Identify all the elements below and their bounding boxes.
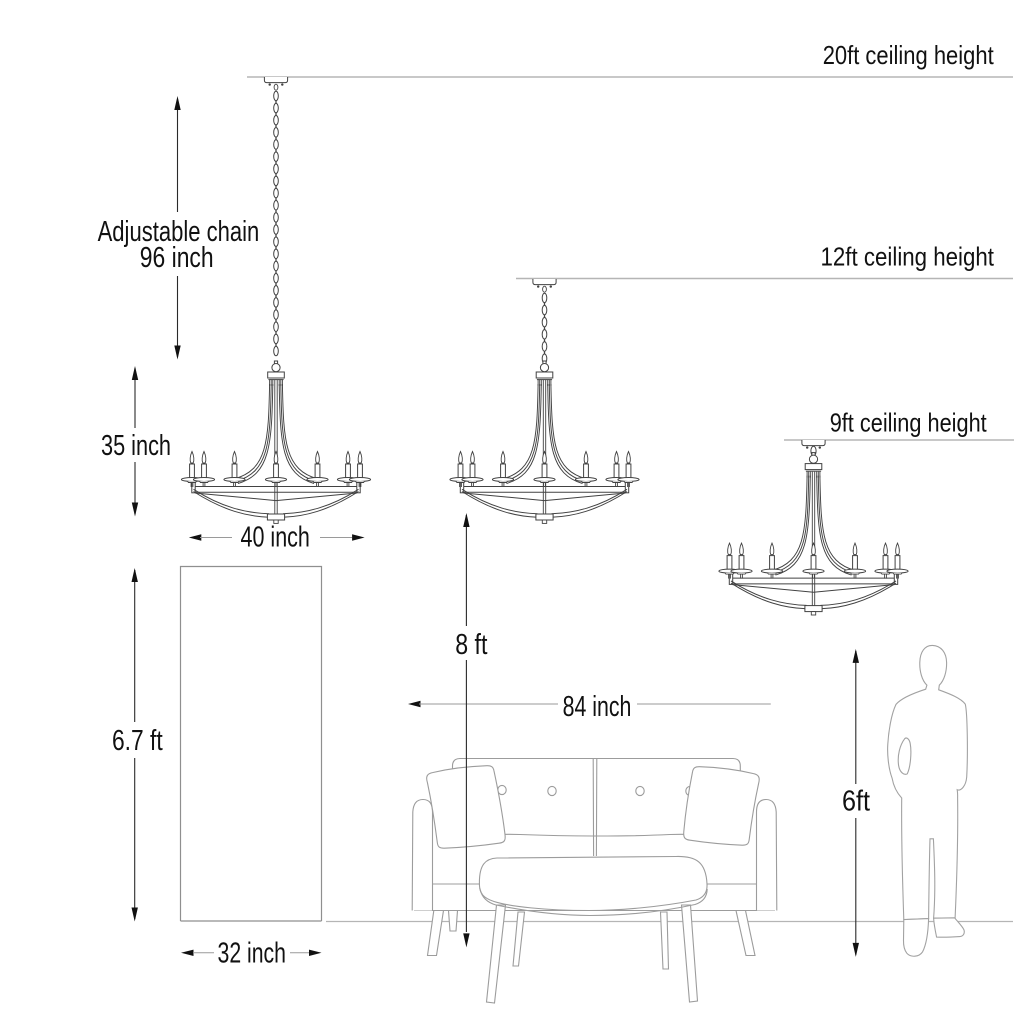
svg-text:12ft ceiling height: 12ft ceiling height <box>821 241 995 271</box>
svg-text:40 inch: 40 inch <box>241 521 310 553</box>
svg-text:84 inch: 84 inch <box>563 691 632 723</box>
svg-text:96 inch: 96 inch <box>140 242 214 274</box>
svg-text:8 ft: 8 ft <box>455 629 487 661</box>
svg-text:35 inch: 35 inch <box>101 430 171 462</box>
svg-text:9ft ceiling height: 9ft ceiling height <box>830 407 988 437</box>
svg-text:6ft: 6ft <box>842 786 870 818</box>
svg-text:20ft ceiling height: 20ft ceiling height <box>823 40 995 70</box>
svg-text:32 inch: 32 inch <box>218 938 287 970</box>
svg-text:6.7 ft: 6.7 ft <box>112 725 163 757</box>
